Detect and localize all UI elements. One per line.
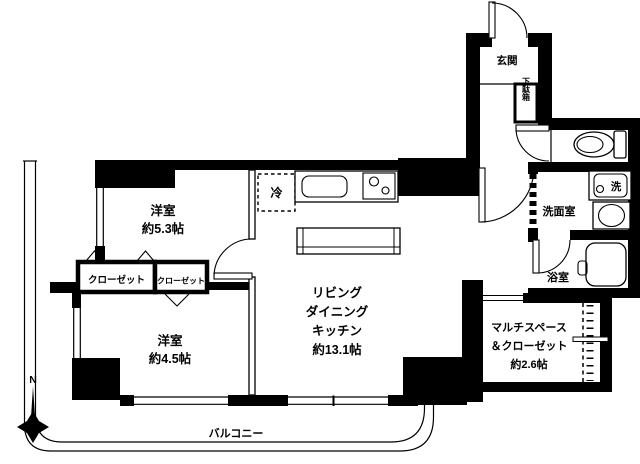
bedroom2-label: 洋室 <box>157 333 183 348</box>
compass-icon: N <box>17 374 49 443</box>
partition-bedroom2-ldk <box>249 277 255 395</box>
wall-toilet-top <box>538 118 640 130</box>
toilet-icon <box>574 132 614 157</box>
toilet-door-arc <box>516 128 549 161</box>
bathroom-label: 浴室 <box>547 270 569 284</box>
washer-label: 洗 <box>611 180 622 193</box>
wall-kitchen-pillar <box>398 158 480 196</box>
window-bedroom2 <box>74 308 81 358</box>
bathtub-icon <box>586 243 626 286</box>
floor-plan: N 洋室 約5.3帖 洋室 約4.5帖 リビング ダイニング キッチン 約13.… <box>0 0 640 464</box>
entrance-label: 玄関 <box>497 54 518 67</box>
wall-bottomright-pillar <box>403 357 467 405</box>
ldk-label-2: ダイニング <box>306 304 369 319</box>
closet-large-label: クローゼット <box>88 274 145 286</box>
multi-space-threshold <box>483 296 523 301</box>
wall-washroom-door-top <box>528 162 538 174</box>
wall-washroom-bathroom <box>570 230 628 240</box>
partition-bedroom1-ldk <box>249 170 255 239</box>
bedroom1-door-arc <box>214 239 252 276</box>
floor-plan-drawing: N 洋室 約5.3帖 洋室 約4.5帖 リビング ダイニング キッチン 約13.… <box>0 0 640 464</box>
window-bottom-right <box>288 397 388 404</box>
compass-north-label: N <box>29 374 37 386</box>
closet-small-label: クローゼット <box>157 276 205 286</box>
refrigerator-label: 冷 <box>270 185 282 200</box>
toilet-tank-icon <box>614 131 626 158</box>
bathroom-fixtures <box>578 243 626 286</box>
bedroom1-label: 洋室 <box>150 203 176 218</box>
wall-entrance-left <box>466 33 480 165</box>
multi-space-label-2: ＆クローゼット <box>491 339 568 353</box>
wall-multi-top <box>523 293 612 303</box>
window-bottom-left <box>134 397 228 404</box>
wall-bottom-seg1 <box>120 395 134 406</box>
wall-entrance-right <box>538 33 552 118</box>
closet-shelf <box>573 337 608 342</box>
kitchen <box>258 171 400 254</box>
bedroom1-size: 約5.3帖 <box>142 221 185 236</box>
entrance-door-leaf <box>489 2 495 38</box>
ldk-size: 約13.1帖 <box>312 342 362 357</box>
entrance-door-arc <box>492 3 527 38</box>
balcony-railing <box>23 161 434 451</box>
washroom-fixtures <box>589 171 631 229</box>
wall-multi-right <box>600 293 612 392</box>
window-bedroom1 <box>97 188 104 246</box>
toilet-door-leaf <box>516 125 549 131</box>
bedroom1-door-leaf <box>214 273 252 279</box>
multi-space-label-1: マルチスペース <box>491 321 567 334</box>
bedroom2-size: 約4.5帖 <box>149 351 192 366</box>
wall-multi-bottom <box>478 382 612 392</box>
wall-entrance-top-left <box>466 33 492 47</box>
bathroom-door-arc <box>537 240 570 273</box>
wall-bedroom2-left-top <box>72 292 81 308</box>
compass-star <box>17 411 49 443</box>
wall-bottom-seg2 <box>228 395 288 406</box>
wall-bottomleft-pillar <box>72 358 120 400</box>
kitchen-island-counter <box>297 228 400 254</box>
wall-topleft-pillar <box>95 160 175 188</box>
washroom-label: 洗面室 <box>543 204 576 218</box>
closet-fold-mark-3 <box>165 294 189 306</box>
bathroom-door-leaf <box>533 240 539 273</box>
ldk-label-1: リビング <box>312 285 363 300</box>
ldk-label-3: キッチン <box>312 324 362 338</box>
shoe-cabinet-label: 下駄箱 <box>521 77 531 102</box>
toilet <box>574 131 626 158</box>
ldk-door-leaf <box>479 168 485 222</box>
closet-fold-mark-2 <box>137 251 154 261</box>
balcony-label: バルコニー <box>209 427 264 440</box>
ldk-door-arc <box>480 168 534 222</box>
multi-space-size: 約2.6帖 <box>510 357 547 371</box>
